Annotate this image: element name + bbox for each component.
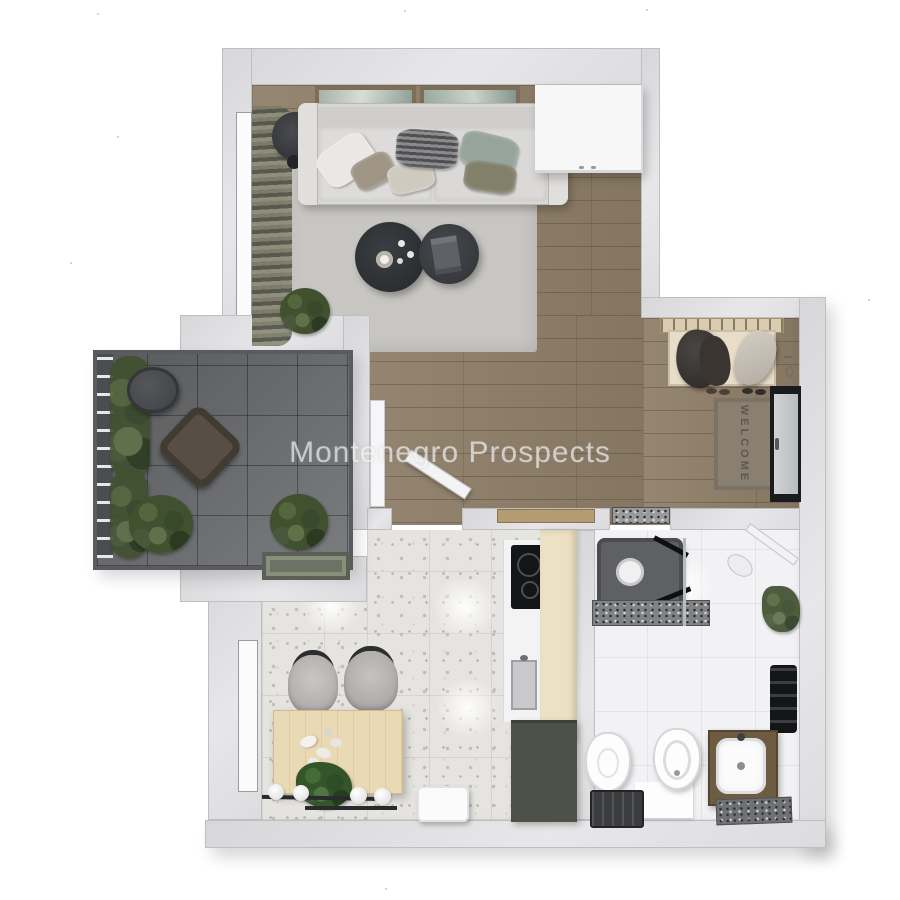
shower-drain — [616, 558, 644, 586]
wall-top — [225, 48, 660, 85]
magazine-on-table — [430, 235, 461, 275]
washing-machine — [590, 790, 644, 828]
light-reflection — [430, 680, 505, 735]
door-handle — [775, 438, 779, 450]
pendant-light-rail — [305, 806, 397, 810]
burner-large — [517, 553, 541, 577]
pendant-globe — [350, 787, 367, 804]
sofa-armrest-left — [298, 103, 318, 205]
dust-speck — [404, 10, 406, 12]
kitchen-sink — [511, 660, 537, 710]
dust-speck — [646, 9, 648, 11]
bath-mat-dark — [716, 797, 793, 826]
bathroom-plant — [762, 586, 800, 632]
kitchen-window — [238, 640, 258, 792]
pillow-striped — [395, 128, 459, 170]
balcony-plant-right — [270, 494, 328, 550]
living-room-window — [236, 112, 252, 340]
bidet-drain — [674, 770, 680, 776]
dining-chair — [288, 655, 338, 713]
living-plant — [280, 288, 330, 334]
sink-drain — [737, 762, 745, 770]
wardrobe-handle — [591, 166, 596, 169]
balcony-plant-left — [129, 495, 193, 553]
cup-on-table — [407, 251, 414, 258]
floor-plan-render: WELCOME — [0, 0, 900, 900]
cup-on-table — [397, 258, 403, 264]
key-hook-icon — [784, 356, 792, 358]
wall-hall-bottom-c — [670, 508, 800, 530]
sink-faucet-dot — [737, 733, 745, 741]
plate — [330, 738, 342, 747]
wall-right — [799, 297, 826, 848]
wardrobe — [535, 85, 643, 173]
pendant-globe — [374, 788, 391, 805]
cup-on-table — [398, 240, 405, 247]
watermark-text: Montenegro Prospects — [289, 436, 611, 470]
cup — [324, 729, 332, 737]
balcony-table — [127, 367, 179, 413]
wall-hall-bottom-a — [367, 508, 392, 530]
stool — [417, 786, 469, 822]
balcony-doormat — [262, 552, 350, 580]
bowl-on-table — [376, 251, 393, 268]
light-reflection — [425, 580, 505, 635]
welcome-mat-text: WELCOME — [738, 405, 750, 483]
kitchen-counter-dark — [511, 720, 577, 822]
wardrobe-handle — [579, 166, 584, 169]
toilet-bowl — [597, 748, 619, 778]
kitchen-threshold — [497, 509, 595, 523]
towel-radiator — [770, 665, 797, 733]
burner-small — [521, 581, 539, 599]
shoe — [742, 388, 753, 394]
bathroom-door-mat — [612, 507, 670, 524]
sofa-back-cushion — [303, 107, 563, 129]
dust-speck — [385, 888, 387, 890]
cooktop — [511, 545, 543, 609]
dust-speck — [117, 136, 119, 138]
sink-faucet — [520, 655, 528, 661]
shoe — [719, 389, 730, 395]
tall-cabinet-cream — [540, 530, 577, 743]
dust-speck — [868, 299, 870, 301]
pendant-globe — [268, 784, 284, 800]
pendant-globe — [293, 785, 309, 801]
shower-glass — [683, 538, 686, 626]
shower-mat — [592, 600, 710, 626]
welcome-mat: WELCOME — [714, 398, 774, 490]
peephole-icon — [786, 366, 793, 377]
shoe — [755, 389, 766, 395]
dining-chair — [344, 651, 398, 711]
dust-speck — [70, 262, 72, 264]
shoe — [706, 388, 717, 394]
wall-living-right — [641, 48, 660, 302]
dust-speck — [97, 13, 99, 15]
